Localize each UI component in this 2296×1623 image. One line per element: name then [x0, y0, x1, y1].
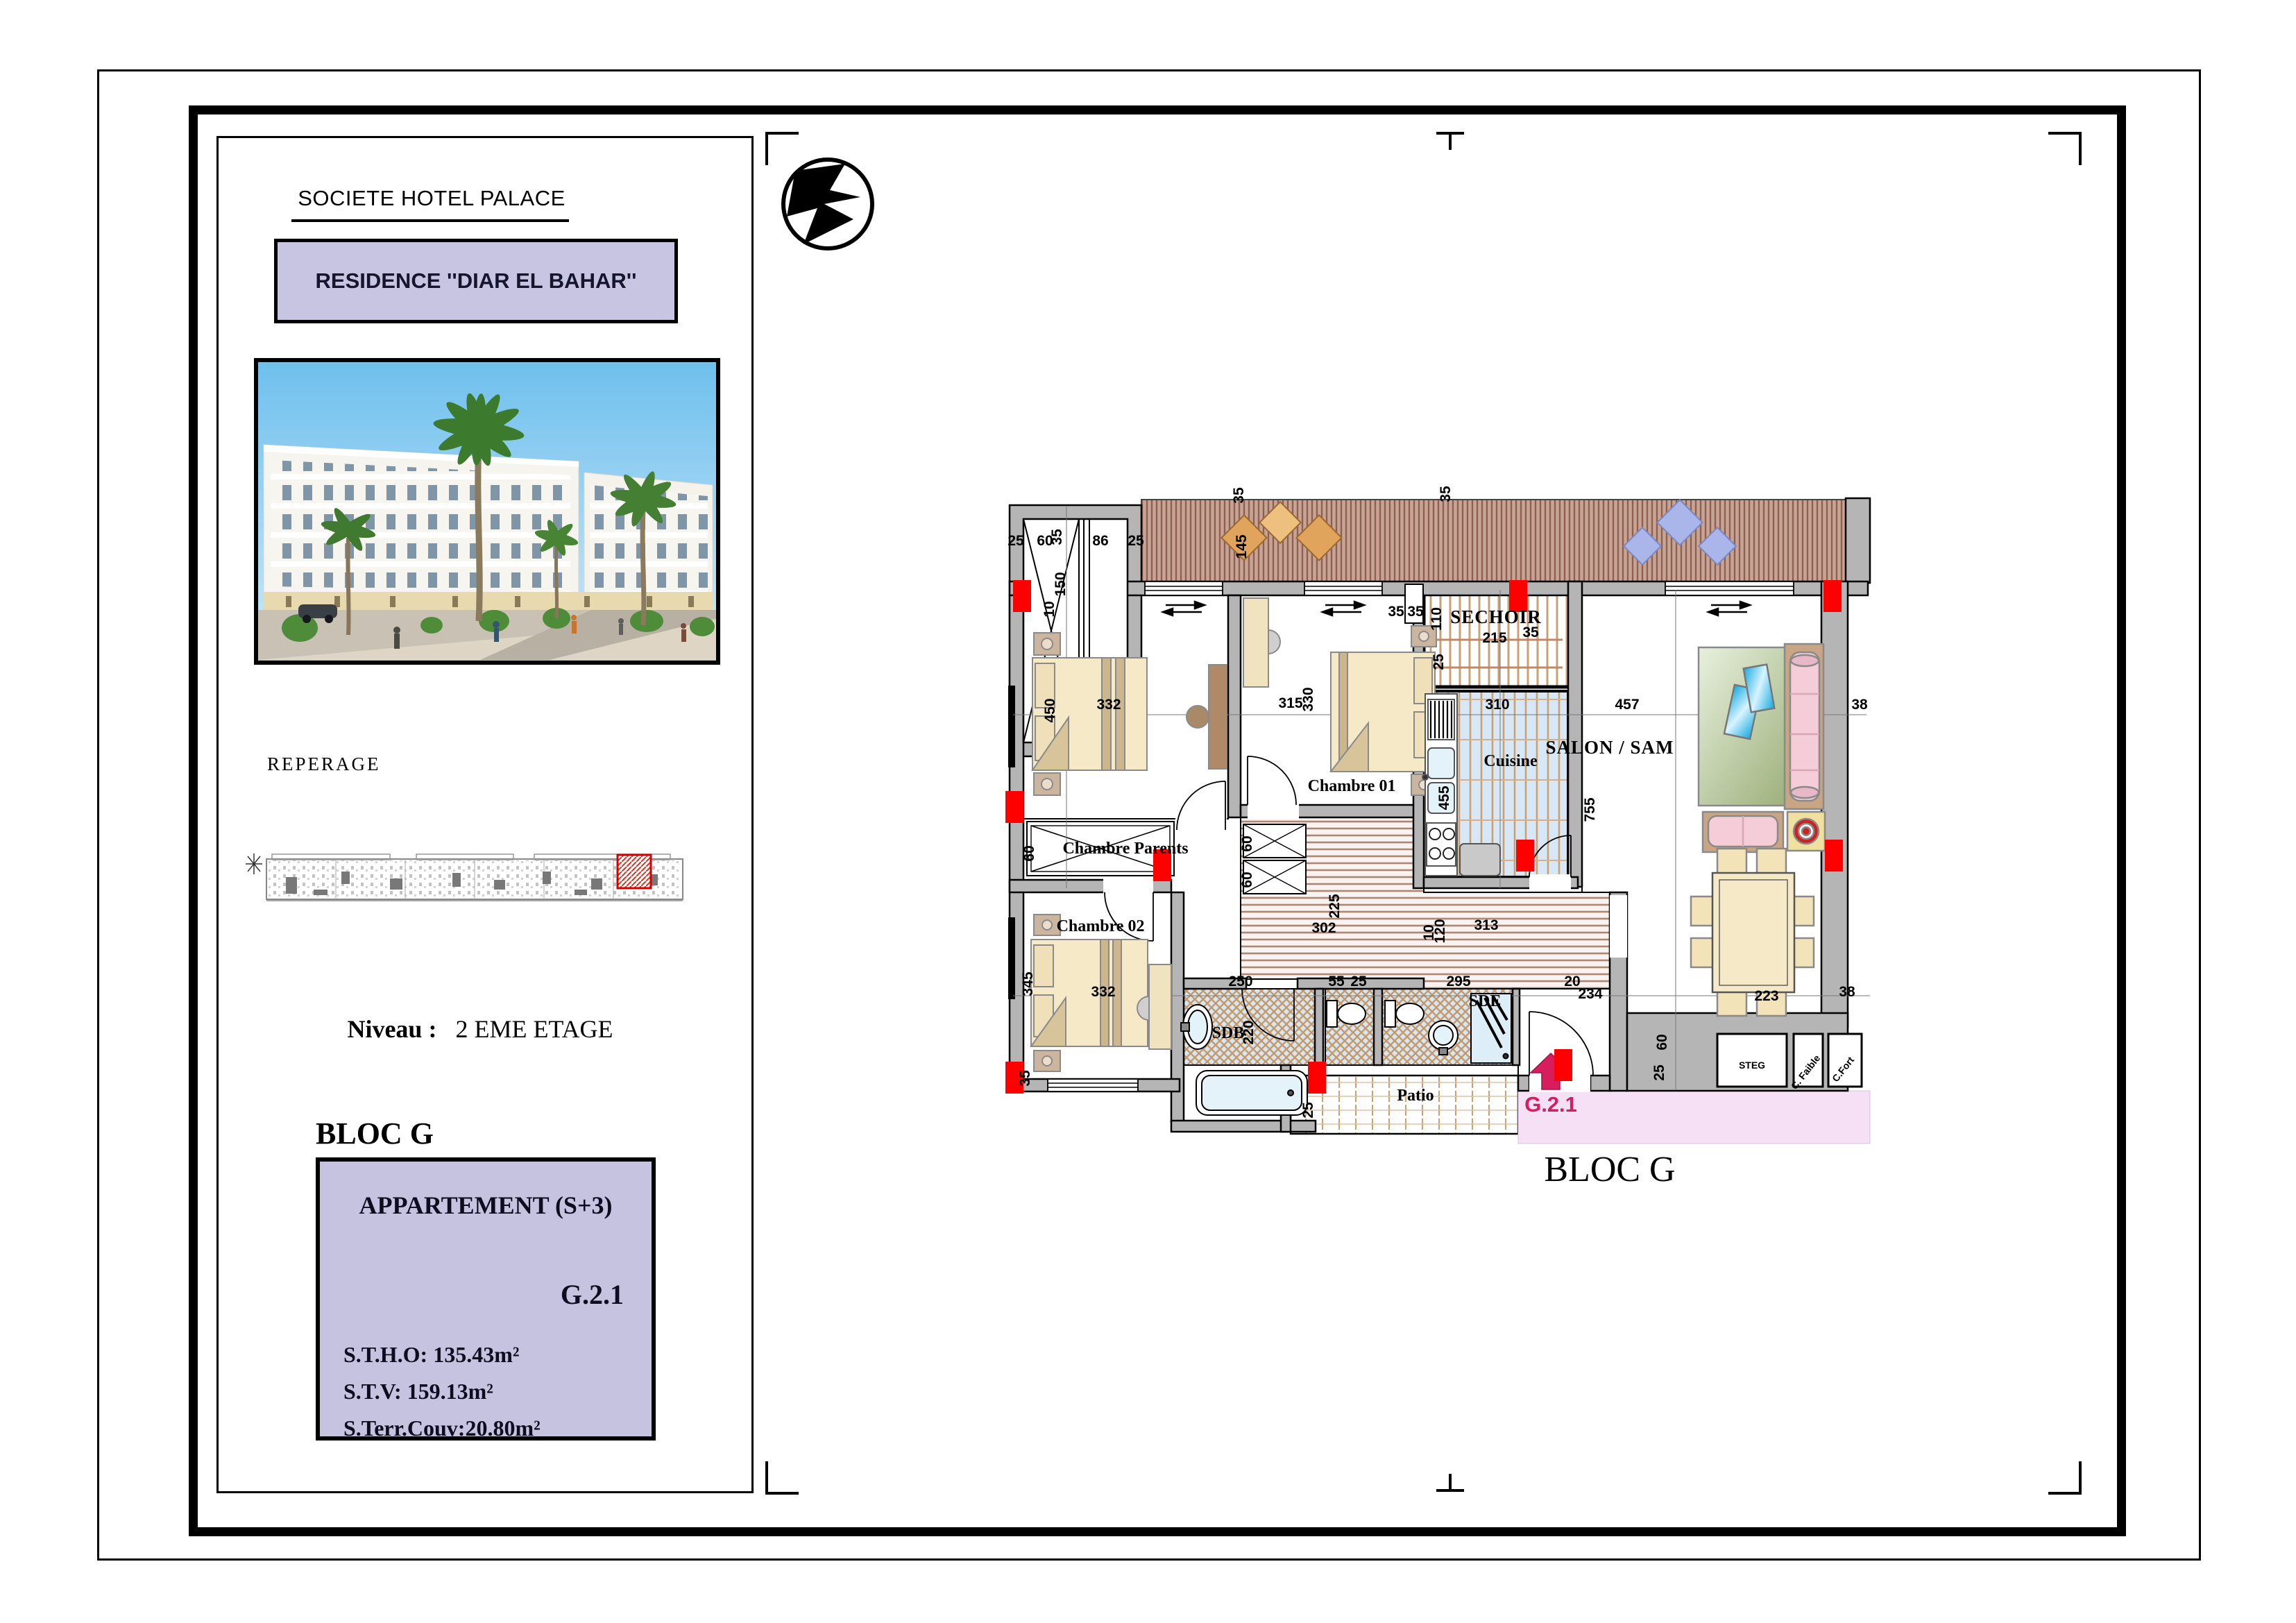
plan-text: 315: [1278, 695, 1302, 711]
plan-text: 86: [1092, 533, 1108, 549]
highlighted-unit: [618, 855, 651, 888]
plan-text: 145: [1234, 534, 1250, 559]
surface-stv: S.T.V: 159.13m²: [343, 1373, 541, 1410]
building-left: [264, 445, 579, 607]
plan-text: 310: [1485, 697, 1509, 713]
plan-text: Patio: [1397, 1087, 1434, 1105]
plan-text: 25: [1431, 654, 1447, 670]
building-photo: [254, 358, 720, 665]
plan-text: 38: [1839, 984, 1855, 1000]
north-arrow-icon: [776, 154, 880, 258]
plan-text: 455: [1436, 785, 1452, 810]
column-marker: [1554, 1049, 1572, 1081]
plan-text: SDB: [1212, 1024, 1245, 1042]
plan-text: STEG: [1739, 1060, 1765, 1071]
surface-terr: S.Terr.Couv:20.80m²: [343, 1410, 541, 1447]
plan-text: Chambre 02: [1057, 917, 1145, 935]
plan-text: 35: [1231, 487, 1247, 504]
plan-text: 35: [1017, 1070, 1033, 1087]
corner-mark-tr: [2048, 132, 2082, 165]
site-plan-key: [243, 823, 709, 917]
level-value: 2 EME ETAGE: [455, 1015, 613, 1043]
edge-tick-bottom-v: [1449, 1474, 1452, 1492]
plan-text: 330: [1300, 687, 1316, 711]
plan-text: Chambre 01: [1308, 777, 1396, 795]
plan-text: 25: [1128, 533, 1144, 549]
plan-text: Cuisine: [1483, 752, 1538, 770]
plan-text: SALON / SAM: [1545, 737, 1674, 758]
plan-text: 38: [1851, 697, 1868, 713]
company-name: SOCIETE HOTEL PALACE: [286, 186, 577, 211]
plan-text: Chambre Parents: [1062, 840, 1188, 858]
plan-text: 755: [1582, 797, 1598, 822]
unit-label: G.2.1: [1524, 1092, 1577, 1116]
drawing-sheet: SOCIETE HOTEL PALACE RESIDENCE ''DIAR EL…: [0, 0, 2296, 1623]
plan-text: 55: [1328, 974, 1345, 989]
reperage-title: REPERAGE: [267, 754, 381, 775]
plan-text: 215: [1482, 630, 1506, 646]
column-marker: [1825, 840, 1843, 872]
column-marker: [1823, 580, 1842, 612]
residence-banner: RESIDENCE ''DIAR EL BAHAR'': [274, 239, 678, 323]
plan-text: 150: [1053, 572, 1069, 596]
bloc-label: BLOC G: [316, 1116, 434, 1151]
plan-text: 25: [1300, 1102, 1316, 1119]
plan-text: 223: [1754, 988, 1778, 1004]
plan-text: 60: [1021, 845, 1037, 861]
plan-text: 120: [1432, 919, 1448, 943]
corner-mark-bl: [765, 1461, 799, 1495]
plan-text: 332: [1091, 984, 1115, 1000]
edge-tick-top-v: [1449, 132, 1452, 150]
plan-text: 302: [1311, 920, 1336, 936]
north-star-icon: [246, 853, 262, 874]
plan-text: 35: [1407, 604, 1424, 620]
plan-text: 332: [1096, 697, 1121, 713]
plan-text: SECHOIR: [1450, 606, 1542, 627]
plan-text: 60: [1654, 1034, 1670, 1050]
plan-text: 450: [1042, 698, 1058, 722]
plan-text: 225: [1327, 894, 1343, 918]
plan-text: 313: [1474, 917, 1498, 933]
column-marker: [1308, 1062, 1326, 1094]
apartment-unit: G.2.1: [561, 1278, 624, 1311]
plan-text: 10: [1041, 601, 1057, 617]
column-marker: [1005, 791, 1023, 823]
column-marker: [1013, 580, 1031, 612]
plan-text: 457: [1615, 697, 1639, 713]
plan-text: 35: [1388, 604, 1404, 620]
plan-text: 25: [1350, 974, 1367, 989]
building-render: [258, 362, 716, 661]
plan-text: 25: [1651, 1064, 1667, 1081]
surface-stho: S.T.H.O: 135.43m²: [343, 1336, 541, 1373]
apartment-info-box: APPARTEMENT (S+3) G.2.1 S.T.H.O: 135.43m…: [316, 1157, 656, 1441]
plan-text: 234: [1578, 986, 1602, 1002]
company-underline: [291, 219, 569, 222]
corner-mark-br: [2048, 1461, 2082, 1495]
plan-text: 60: [1239, 835, 1255, 851]
plan-text: 110: [1429, 607, 1445, 631]
plan-text: 25: [1007, 533, 1024, 549]
bloc-caption: BLOC G: [1544, 1150, 1675, 1189]
level-line: Niveau : 2 EME ETAGE: [286, 1014, 674, 1044]
plan-text: 60: [1037, 533, 1053, 549]
plan-text: SDE: [1469, 992, 1502, 1010]
apartment-title: APPARTEMENT (S+3): [320, 1191, 652, 1220]
residence-name: RESIDENCE ''DIAR EL BAHAR'': [316, 269, 637, 294]
plan-text: 35: [1438, 486, 1454, 502]
column-marker: [1516, 840, 1534, 872]
floor-plan: G.2.1 BLOC G 352560862515010351453535351…: [999, 479, 1880, 1193]
plan-text: 345: [1020, 971, 1036, 996]
plan-text: 60: [1239, 872, 1255, 887]
level-label: Niveau :: [347, 1015, 436, 1043]
plan-text: 250: [1228, 974, 1252, 989]
plan-text: 295: [1446, 974, 1470, 989]
